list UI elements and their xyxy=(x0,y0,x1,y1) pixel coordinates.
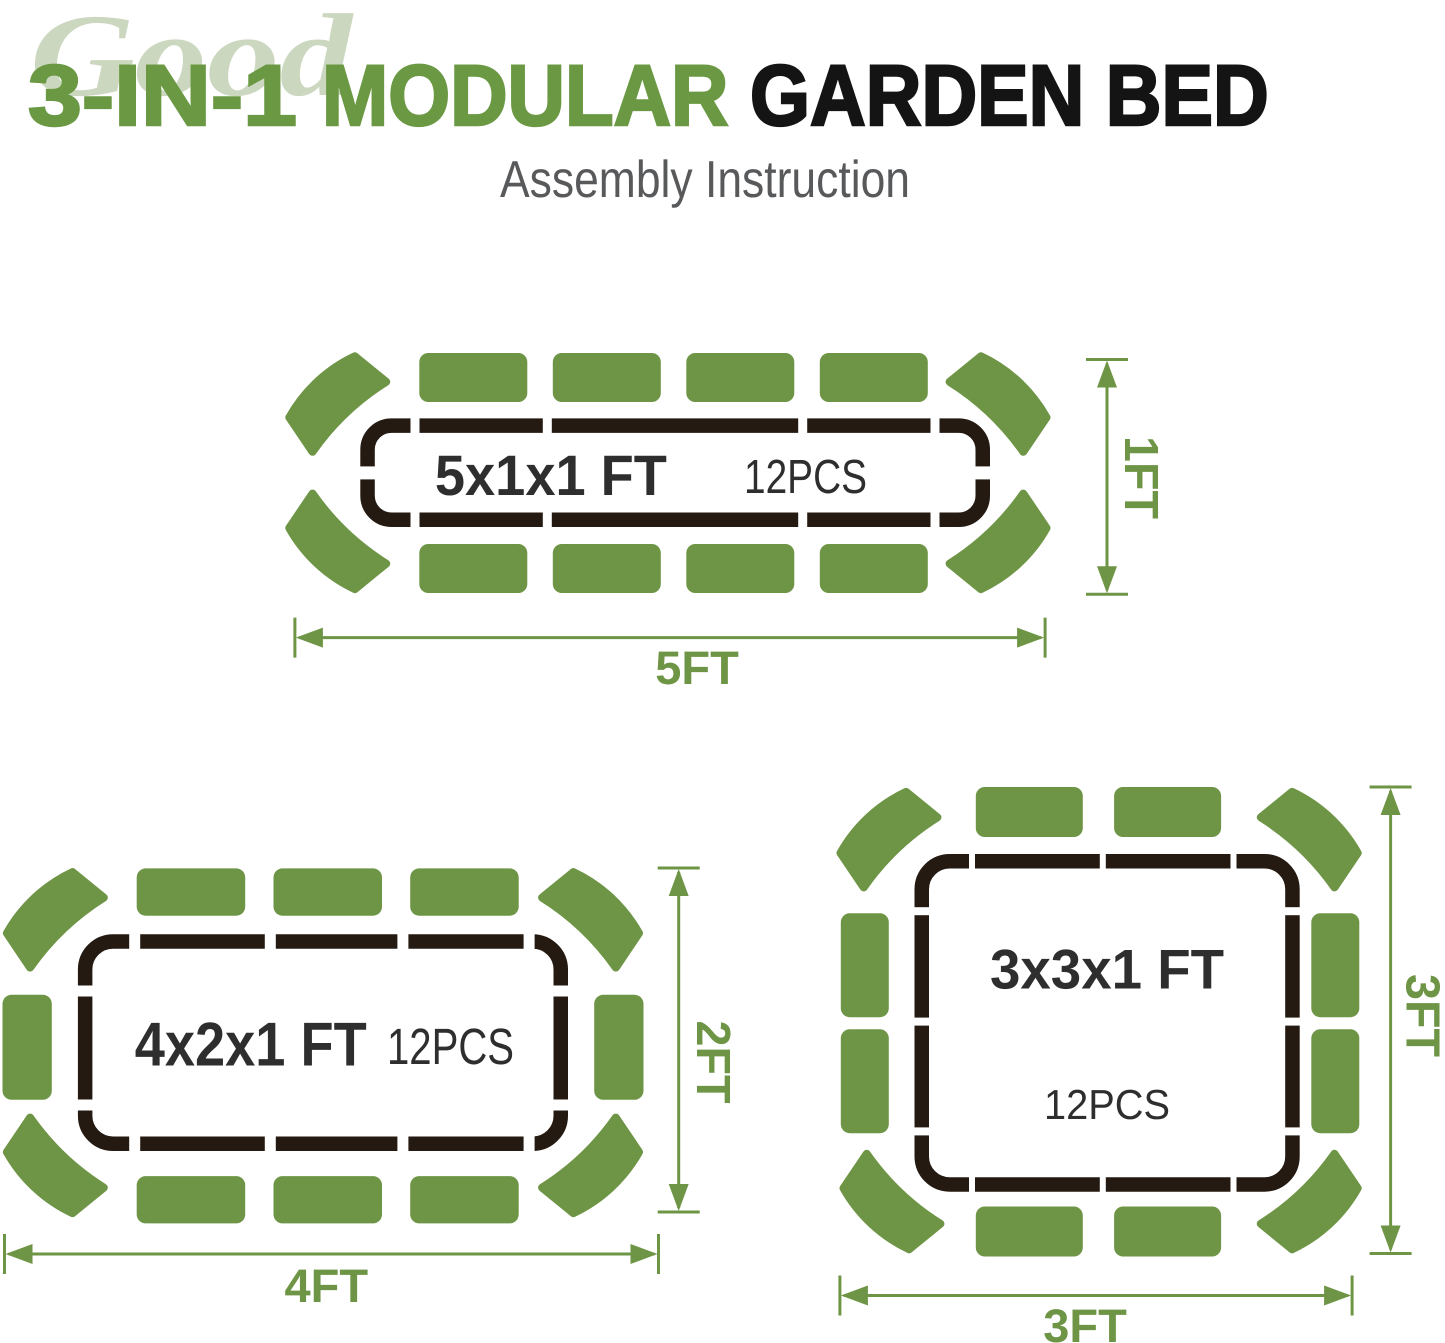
svg-text:12PCS: 12PCS xyxy=(387,1018,514,1075)
svg-text:5FT: 5FT xyxy=(655,641,739,694)
svg-text:1FT: 1FT xyxy=(1114,436,1167,519)
svg-text:4x2x1 FT: 4x2x1 FT xyxy=(135,1011,367,1080)
svg-text:GARDEN BED: GARDEN BED xyxy=(750,48,1269,144)
svg-text:12PCS: 12PCS xyxy=(744,451,867,504)
svg-text:12PCS: 12PCS xyxy=(1044,1081,1170,1128)
svg-text:MODULAR: MODULAR xyxy=(322,48,728,144)
svg-text:3FT: 3FT xyxy=(1043,1299,1127,1343)
svg-text:3-IN-1: 3-IN-1 xyxy=(28,48,297,144)
svg-text:2FT: 2FT xyxy=(686,1021,739,1104)
svg-text:5x1x1 FT: 5x1x1 FT xyxy=(435,444,667,508)
svg-text:3x3x1 FT: 3x3x1 FT xyxy=(990,937,1224,1000)
svg-text:Assembly Instruction: Assembly Instruction xyxy=(500,151,910,209)
svg-text:3FT: 3FT xyxy=(1396,974,1445,1057)
svg-text:4FT: 4FT xyxy=(285,1259,369,1312)
